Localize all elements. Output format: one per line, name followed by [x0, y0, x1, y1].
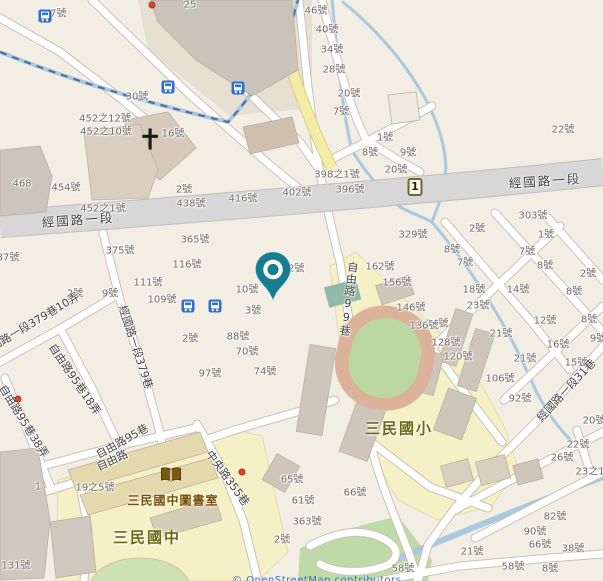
pin-icon — [252, 250, 294, 302]
highway-1-shield: 1 — [408, 178, 423, 196]
attribution-partial[interactable]: © OpenStreetMap contributors — [232, 575, 401, 581]
map-canvas[interactable]: 67號2530號46號40號34號28號20號7號1號8號9號20號22號452… — [0, 0, 603, 581]
location-pin-marker[interactable] — [252, 250, 294, 306]
map-tiles — [0, 0, 603, 581]
